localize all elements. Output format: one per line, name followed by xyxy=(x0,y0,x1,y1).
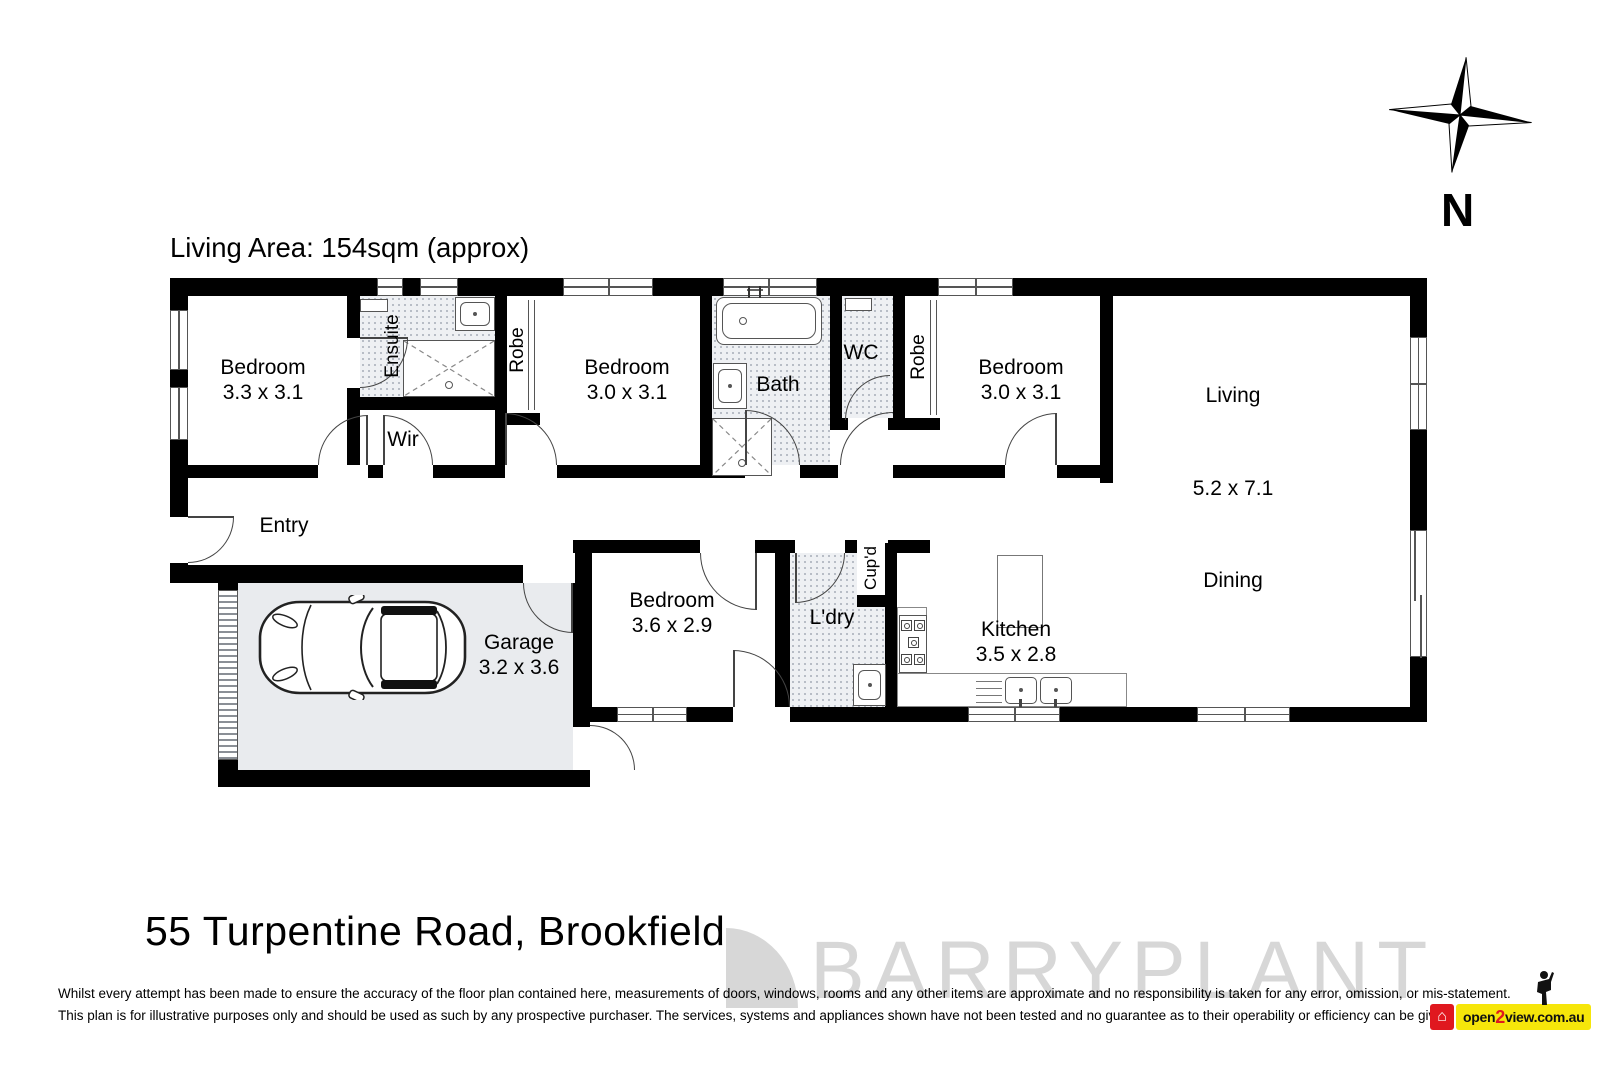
compass-rose-icon xyxy=(1384,55,1536,183)
room-label-ensuite: Ensuite xyxy=(382,314,404,377)
door-gap xyxy=(383,465,433,478)
wall xyxy=(888,418,940,430)
room-label-laundry: L'dry xyxy=(810,606,855,631)
wall xyxy=(700,296,712,478)
toilet-icon xyxy=(360,299,388,312)
door-gap xyxy=(573,727,590,770)
open2view-logo: ⌂ open2view.com.au xyxy=(1430,1004,1591,1030)
door-leaf xyxy=(733,650,735,707)
window xyxy=(617,707,687,722)
room-label-robe2: Robe xyxy=(908,334,930,379)
shower-icon xyxy=(403,340,495,397)
room-label-garage: Garage3.2 x 3.6 xyxy=(479,631,560,681)
wall xyxy=(218,770,590,787)
room-label-wir: Wir xyxy=(387,428,418,453)
window xyxy=(563,278,653,296)
floorplan-page: Living Area: 154sqm (approx) N xyxy=(0,0,1600,1085)
toilet-icon xyxy=(845,298,872,311)
window xyxy=(1197,707,1290,722)
door-gap xyxy=(733,707,790,722)
door-gap xyxy=(1005,465,1057,478)
window xyxy=(170,387,188,440)
room-label-wc: WC xyxy=(844,341,879,366)
wall xyxy=(573,583,590,727)
door-leaf xyxy=(1055,413,1057,465)
car-icon xyxy=(255,595,470,700)
sliding-door xyxy=(1410,530,1427,657)
door-leaf xyxy=(571,583,573,633)
room-label-bath: Bath xyxy=(756,373,799,398)
door-leaf xyxy=(188,516,234,518)
door-gap xyxy=(318,465,368,478)
room-label-entry: Entry xyxy=(259,514,308,539)
door-gap xyxy=(505,465,557,478)
disclaimer-line-2: This plan is for illustrative purposes o… xyxy=(58,1008,1454,1023)
open2view-wordmark: open2view.com.au xyxy=(1456,1004,1591,1030)
door-arc xyxy=(1005,413,1057,465)
robe-sliding-door-icon xyxy=(528,300,535,410)
property-address: 55 Turpentine Road, Brookfield xyxy=(145,908,725,955)
robe-sliding-door-icon xyxy=(930,300,937,415)
door-gap xyxy=(523,565,573,583)
wall xyxy=(893,296,905,430)
window xyxy=(170,310,188,370)
window xyxy=(420,278,458,296)
wall xyxy=(845,540,857,553)
room-label-living-dims: 5.2 x 7.1 xyxy=(1193,477,1274,502)
wall xyxy=(218,583,238,590)
wall xyxy=(830,296,842,430)
door-arc xyxy=(188,517,234,563)
compass-north-label: N xyxy=(1441,183,1474,237)
window xyxy=(968,707,1060,722)
sink-icon xyxy=(713,363,747,409)
wall xyxy=(170,565,573,583)
sink-icon xyxy=(455,297,495,331)
room-label-bedroom4: Bedroom3.6 x 2.9 xyxy=(629,589,714,639)
door-arc xyxy=(590,725,635,770)
door-leaf xyxy=(505,413,507,465)
entry-door-gap xyxy=(170,517,188,563)
door-leaf xyxy=(755,553,757,610)
door-leaf xyxy=(383,415,385,465)
room-label-cupboard: Cup'd xyxy=(861,546,881,590)
room-label-bedroom3: Bedroom3.0 x 3.1 xyxy=(978,356,1063,406)
bath-taps-icon xyxy=(747,286,763,298)
door-gap xyxy=(347,338,360,388)
room-label-bedroom2: Bedroom3.0 x 3.1 xyxy=(584,356,669,406)
room-label-robe1: Robe xyxy=(507,327,529,372)
door-leaf xyxy=(795,553,797,603)
laundry-trough-icon xyxy=(853,664,886,706)
room-label-dining: Dining xyxy=(1203,569,1263,594)
door-gap xyxy=(838,465,893,478)
disclaimer-line-1: Whilst every attempt has been made to en… xyxy=(58,986,1511,1001)
room-label-bedroom1: Bedroom3.3 x 3.1 xyxy=(220,356,305,406)
bathtub-icon xyxy=(716,297,822,345)
open2view-house-icon: ⌂ xyxy=(1430,1004,1454,1030)
garage-roller-door xyxy=(218,590,238,760)
window xyxy=(723,278,817,296)
door-arc xyxy=(318,415,368,465)
living-area-label: Living Area: 154sqm (approx) xyxy=(170,232,529,264)
wall xyxy=(347,397,495,410)
wall xyxy=(1100,296,1113,483)
window xyxy=(377,278,403,296)
open2view-person-icon xyxy=(1528,970,1558,1006)
window xyxy=(938,278,1013,296)
room-label-kitchen: Kitchen3.5 x 2.8 xyxy=(976,618,1057,668)
wall xyxy=(857,595,897,607)
barryplant-watermark: BARRYPLANT xyxy=(810,924,1435,1018)
room-label-living: Living xyxy=(1206,384,1261,409)
wall xyxy=(885,543,897,707)
wall xyxy=(573,540,700,553)
door-arc xyxy=(505,413,557,465)
door-leaf xyxy=(366,415,368,465)
door-leaf xyxy=(745,410,747,465)
window xyxy=(1410,337,1427,430)
